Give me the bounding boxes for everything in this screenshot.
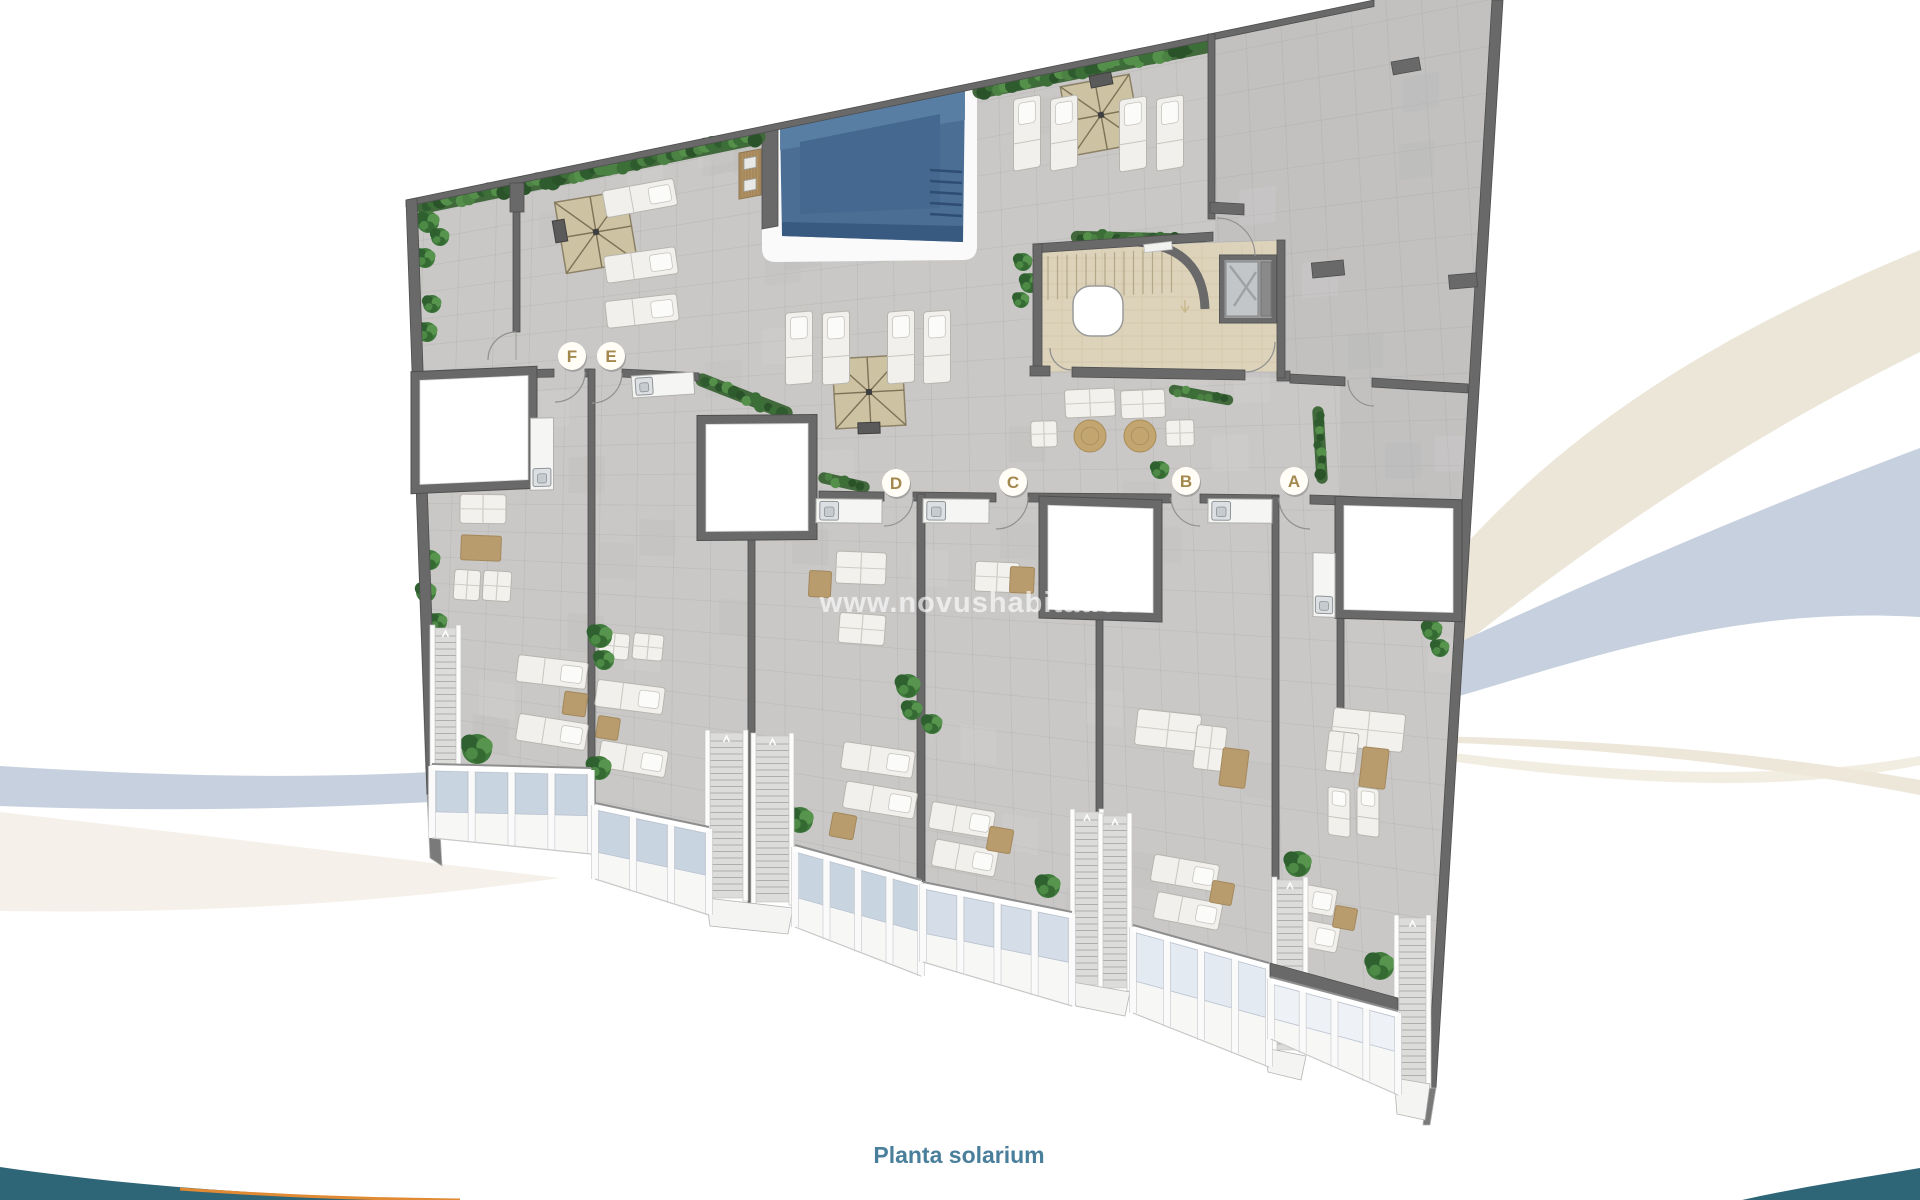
svg-text:A: A — [1288, 472, 1300, 491]
svg-text:C: C — [1007, 473, 1019, 492]
svg-text:E: E — [605, 347, 616, 366]
svg-text:www.novushabitat.es: www.novushabitat.es — [819, 587, 1134, 619]
svg-text:D: D — [890, 474, 902, 493]
svg-text:F: F — [567, 347, 577, 366]
svg-text:Planta solarium: Planta solarium — [873, 1142, 1044, 1168]
svg-text:B: B — [1180, 472, 1192, 491]
